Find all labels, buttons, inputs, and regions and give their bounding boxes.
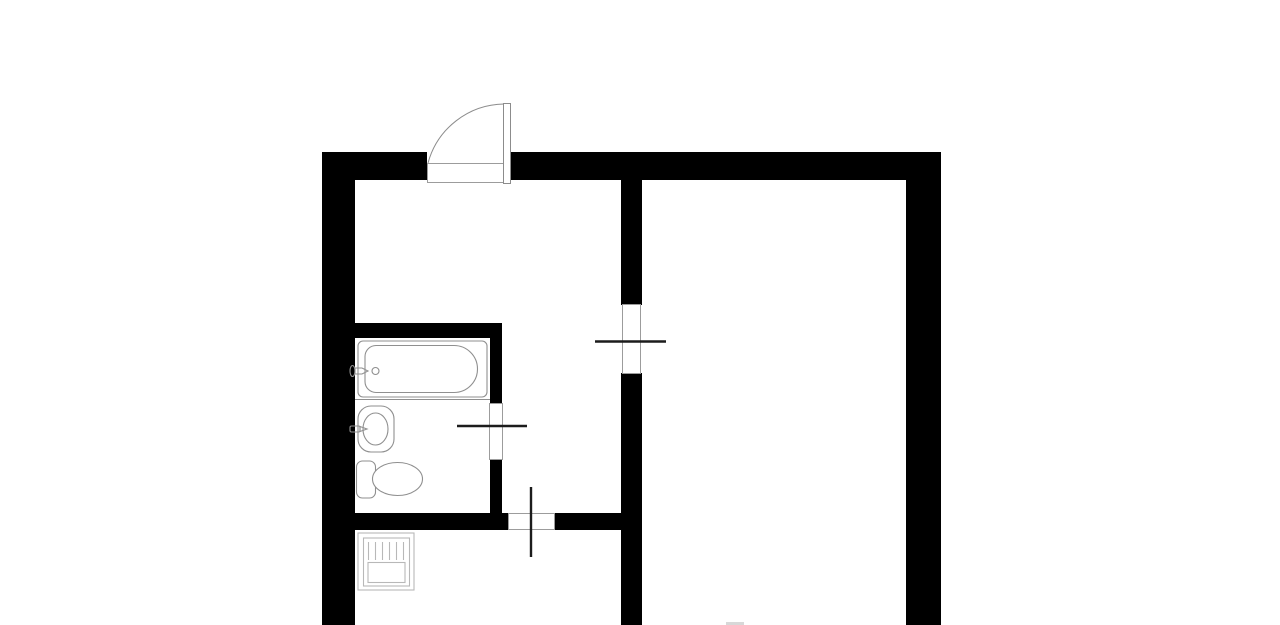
floor-plan-svg xyxy=(0,0,1280,625)
bathroom-fixtures xyxy=(350,341,490,498)
stove-body xyxy=(358,533,414,590)
floor-plan xyxy=(0,0,1280,625)
bathroom-wall-right-lower xyxy=(490,460,502,515)
bathtub-drain xyxy=(372,368,379,375)
toilet-bowl xyxy=(373,463,423,496)
stove-drawer xyxy=(368,563,405,583)
bathtub-faucet-spout xyxy=(355,368,368,374)
outer-wall-left xyxy=(322,152,355,625)
bottom-wall-left-of-door xyxy=(355,513,508,530)
outer-wall-right xyxy=(906,152,941,625)
bathroom-wall-right-upper xyxy=(490,330,502,403)
kitchen-fixtures xyxy=(358,533,414,590)
bathtub-basin xyxy=(365,346,478,393)
bottom-wall-right-of-door xyxy=(555,513,622,530)
partition-wall-upper xyxy=(621,178,642,305)
partition-doorway xyxy=(623,305,641,374)
entrance-door-swing-arc xyxy=(428,104,504,163)
bathroom-wall-top xyxy=(355,323,502,338)
bathroom-doorway xyxy=(490,404,503,460)
walls xyxy=(322,152,941,625)
outer-wall-top-right xyxy=(511,152,941,180)
entrance-door-panel xyxy=(504,104,511,184)
entrance-doorway-sill xyxy=(428,164,511,183)
partition-wall-lower xyxy=(621,373,642,625)
